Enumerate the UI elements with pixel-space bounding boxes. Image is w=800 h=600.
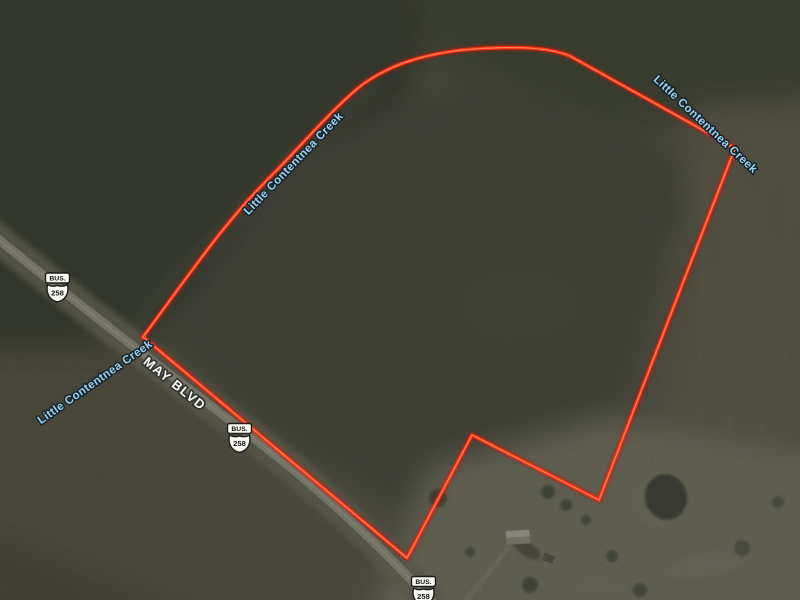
shield-banner-label: BUS. (49, 276, 65, 283)
bus-258-shield-middle: BUS. 258 (228, 424, 252, 453)
bus-258-shield-west: BUS. 258 (46, 273, 70, 302)
shield-banner-label: BUS. (415, 579, 431, 586)
map-canvas: Little Contentnea Creek Little Contentne… (0, 0, 800, 600)
shield-number-label: 258 (417, 592, 430, 600)
shield-number-label: 258 (51, 289, 64, 298)
shield-banner-label: BUS. (231, 426, 247, 433)
satellite-map[interactable]: Little Contentnea Creek Little Contentne… (0, 0, 800, 600)
shield-number-label: 258 (233, 439, 246, 448)
bus-258-shield-south: BUS. 258 (412, 577, 436, 600)
